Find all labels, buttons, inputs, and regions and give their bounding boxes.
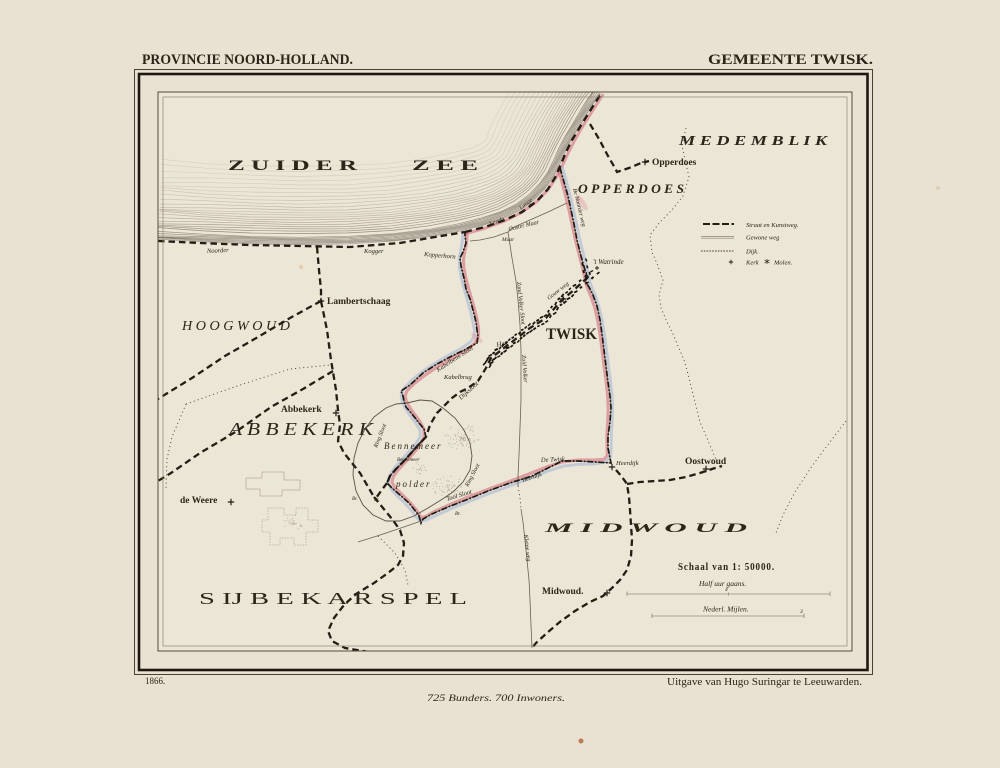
svg-text:Nederl. Mijlen.: Nederl. Mijlen. <box>702 605 749 614</box>
svg-text:Schaal van 1: 50000.: Schaal van 1: 50000. <box>678 562 775 573</box>
svg-text:de Weere: de Weere <box>180 496 217 506</box>
svg-text:Dijk.: Dijk. <box>745 249 759 256</box>
svg-text:3: 3 <box>799 609 803 615</box>
svg-text:Lambertschaag: Lambertschaag <box>327 297 391 307</box>
svg-text:Noorder: Noorder <box>206 247 230 255</box>
svg-text:Kogger: Kogger <box>363 248 384 255</box>
svg-text:De Twisk: De Twisk <box>540 456 565 464</box>
svg-text:4: 4 <box>725 586 728 593</box>
svg-text:Bennemeer: Bennemeer <box>384 441 442 451</box>
svg-text:Br.: Br. <box>374 498 380 503</box>
svg-text:polder: polder <box>395 479 432 489</box>
svg-text:GEMEENTE TWISK.: GEMEENTE TWISK. <box>708 52 873 68</box>
svg-text:S IJ B E K A R S P E L: S IJ B E K A R S P E L <box>199 589 467 608</box>
svg-text:Kerk: Kerk <box>745 260 759 267</box>
svg-text:Uitgave van Hugo Suringar te L: Uitgave van Hugo Suringar te Leeuwarden. <box>667 677 862 688</box>
svg-text:Midwoud.: Midwoud. <box>542 587 583 597</box>
svg-text:Maar: Maar <box>501 237 515 243</box>
svg-text:O P P E R D O E S: O P P E R D O E S <box>578 182 684 196</box>
svg-text:725 Bunders. 700 Inwoners.: 725 Bunders. 700 Inwoners. <box>427 694 565 704</box>
svg-text:Oostwoud: Oostwoud <box>685 457 727 467</box>
svg-text:Abbekerk: Abbekerk <box>281 405 322 415</box>
svg-text:1866.: 1866. <box>145 676 165 686</box>
svg-text:H O O G W O U D: H O O G W O U D <box>181 319 290 334</box>
svg-text:Z E E: Z E E <box>412 158 478 174</box>
svg-text:M E D E M B L I K: M E D E M B L I K <box>678 133 829 148</box>
svg-text:PROVINCIE NOORD-HOLLAND.: PROVINCIE NOORD-HOLLAND. <box>142 52 353 68</box>
svg-text:Half uur gaans.: Half uur gaans. <box>698 579 746 588</box>
svg-text:A B B E K E R K: A B B E K E R K <box>228 419 375 439</box>
svg-text:Br.: Br. <box>455 512 461 517</box>
svg-text:Opperdoes: Opperdoes <box>652 158 697 168</box>
svg-text:Kabelbrug: Kabelbrug <box>443 374 473 381</box>
svg-text:Bennemeer: Bennemeer <box>397 458 420 463</box>
svg-text:Gewone weg: Gewone weg <box>746 235 780 242</box>
svg-text:Straat en Kunstweg.: Straat en Kunstweg. <box>746 222 799 229</box>
svg-text:Br.: Br. <box>352 497 358 502</box>
svg-text:TWISK: TWISK <box>546 326 598 343</box>
svg-text:M I D W O U D: M I D W O U D <box>543 520 749 535</box>
svg-text:Heerdijk: Heerdijk <box>615 460 639 467</box>
svg-text:'t Watrinde: 't Watrinde <box>593 258 624 266</box>
svg-text:Z U I D E R: Z U I D E R <box>228 158 358 174</box>
svg-text:Molen.: Molen. <box>773 260 793 267</box>
